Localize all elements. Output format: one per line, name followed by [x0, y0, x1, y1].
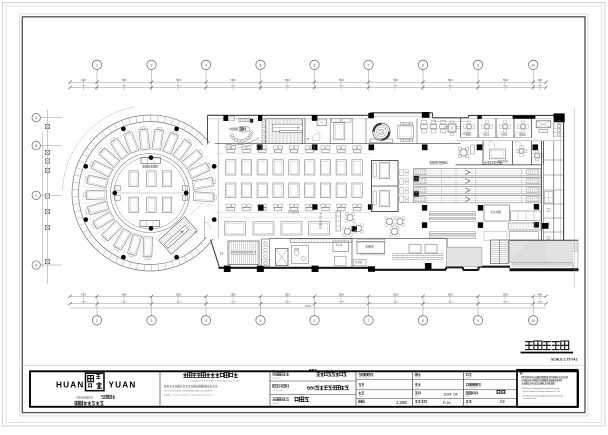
svg-text:5800: 5800 — [339, 79, 345, 82]
svg-text:5800: 5800 — [393, 79, 399, 82]
svg-text:10: 10 — [531, 63, 535, 67]
svg-text:Draw Designer: Draw Designer — [359, 377, 371, 380]
svg-text:5800: 5800 — [448, 79, 454, 82]
svg-text:7: 7 — [368, 319, 370, 323]
svg-text:Check: Check — [359, 388, 364, 390]
svg-text:Checked On Site.: Checked On Site. — [523, 397, 537, 400]
svg-text:2: 2 — [96, 319, 98, 323]
svg-text:4: 4 — [205, 319, 207, 323]
svg-text:7500: 7500 — [537, 85, 543, 87]
svg-text:Super: Super — [359, 395, 364, 398]
svg-text:10: 10 — [531, 319, 535, 323]
svg-text:10900: 10900 — [338, 302, 345, 304]
svg-text:3: 3 — [151, 63, 153, 67]
svg-text:7500: 7500 — [231, 85, 237, 87]
svg-text:2: 2 — [96, 63, 98, 67]
svg-text:5800: 5800 — [503, 293, 509, 296]
svg-text:5800: 5800 — [176, 79, 182, 82]
svg-text:B: B — [35, 144, 37, 148]
svg-text:7500: 7500 — [285, 85, 291, 87]
svg-text:9: 9 — [477, 319, 479, 323]
svg-text:10900: 10900 — [393, 302, 400, 304]
svg-text:10900: 10900 — [230, 302, 237, 304]
svg-text:YUAN: YUAN — [109, 380, 137, 389]
svg-text:P-01: P-01 — [443, 401, 451, 405]
svg-text:T-Name: T-Name — [273, 403, 279, 405]
svg-text:4400: 4400 — [537, 293, 543, 296]
svg-text:Size: Size — [466, 405, 469, 407]
svg-text:10900: 10900 — [503, 302, 510, 304]
svg-text:Scale: Scale — [359, 405, 363, 407]
svg-text:T3: T3 — [220, 252, 224, 256]
svg-text:BBC: BBC — [307, 386, 316, 391]
svg-text:5800: 5800 — [176, 293, 182, 296]
svg-text:7500: 7500 — [176, 85, 182, 87]
svg-text:PROJECT: PROJECT — [273, 378, 282, 380]
svg-text:5800: 5800 — [503, 79, 509, 82]
svg-text:5800: 5800 — [122, 79, 128, 82]
svg-text:T3: T3 — [194, 231, 198, 235]
svg-text:7500: 7500 — [448, 85, 454, 87]
svg-text:10900: 10900 — [80, 302, 87, 304]
svg-text:Design: Design — [415, 378, 420, 380]
svg-text:Specialty DIR.: Specialty DIR. — [466, 387, 477, 390]
svg-text:4400: 4400 — [537, 79, 543, 82]
svg-text:4400: 4400 — [81, 293, 87, 296]
svg-text:Date: Date — [415, 395, 419, 398]
svg-text:8: 8 — [422, 63, 424, 67]
svg-text:10900: 10900 — [284, 302, 291, 304]
svg-text:6: 6 — [314, 319, 316, 323]
svg-text:5800: 5800 — [339, 293, 345, 296]
svg-text:BBC: BBC — [309, 368, 318, 373]
svg-text:HUAN: HUAN — [56, 380, 84, 389]
svg-text:7500: 7500 — [393, 85, 399, 87]
svg-text:by The Property Of Xuanzs Deco: by The Property Of Xuanzs Decoration CO.… — [523, 390, 560, 393]
svg-text:10900: 10900 — [121, 302, 128, 304]
svg-text:7500: 7500 — [339, 85, 345, 87]
svg-text:10900: 10900 — [447, 302, 454, 304]
svg-text:4400: 4400 — [81, 79, 87, 82]
svg-text:NAME: NAME — [466, 377, 472, 380]
svg-text:Proof: Proof — [415, 387, 420, 390]
svg-text:7500: 7500 — [122, 85, 128, 87]
svg-text:5800: 5800 — [285, 293, 291, 296]
svg-text:5: 5 — [260, 63, 262, 67]
svg-text:10900: 10900 — [176, 302, 183, 304]
svg-text:TEL:020-88034568 020-88034888: TEL:020-88034568 020-88034888 FAX:020-88… — [164, 389, 213, 392]
svg-text:5800: 5800 — [231, 79, 237, 82]
svg-text:5800: 5800 — [122, 293, 128, 296]
svg-text:9: 9 — [477, 63, 479, 67]
svg-text:Construction: Construction — [273, 389, 283, 392]
svg-text:1. All Floors Drawings And Des: 1. All Floors Drawings And Design Are Re… — [522, 387, 559, 390]
svg-text:5800: 5800 — [285, 79, 291, 82]
svg-text:46300: 46300 — [305, 305, 312, 308]
svg-text:2. Do Not Scale Drawings All M: 2. Do Not Scale Drawings All Measurement… — [522, 394, 563, 397]
svg-text:Major: Major — [466, 395, 471, 398]
svg-text:Decoration: Decoration — [77, 396, 94, 400]
svg-text:1:280: 1:280 — [396, 400, 408, 405]
svg-text:E-MAIL: xuanyuanzs@qq.com www: E-MAIL: xuanyuanzs@qq.com www.xuanyuanzs… — [164, 393, 212, 396]
svg-text:5: 5 — [260, 319, 262, 323]
svg-text:Drawing NO.: Drawing NO. — [415, 404, 425, 407]
svg-text:7500: 7500 — [81, 85, 87, 87]
svg-text:7500: 7500 — [503, 85, 509, 87]
svg-text:T1: T1 — [306, 137, 310, 141]
svg-text:5800: 5800 — [393, 293, 399, 296]
svg-text:10900: 10900 — [537, 302, 544, 304]
svg-text:3: 3 — [151, 319, 153, 323]
svg-text:2024. 04: 2024. 04 — [444, 392, 458, 396]
svg-text:SCALE 1:75 #A2: SCALE 1:75 #A2 — [551, 357, 577, 361]
svg-text:6: 6 — [314, 63, 316, 67]
svg-text:5800: 5800 — [448, 293, 454, 296]
svg-text:7: 7 — [368, 63, 370, 67]
svg-text:4: 4 — [205, 63, 207, 67]
svg-text:8: 8 — [422, 319, 424, 323]
svg-text:A3: A3 — [499, 399, 505, 404]
svg-text:5800: 5800 — [231, 293, 237, 296]
svg-text:Guangzhou XuanYuan Decoration: Guangzhou XuanYuan Decoration Engineerin… — [190, 379, 240, 382]
